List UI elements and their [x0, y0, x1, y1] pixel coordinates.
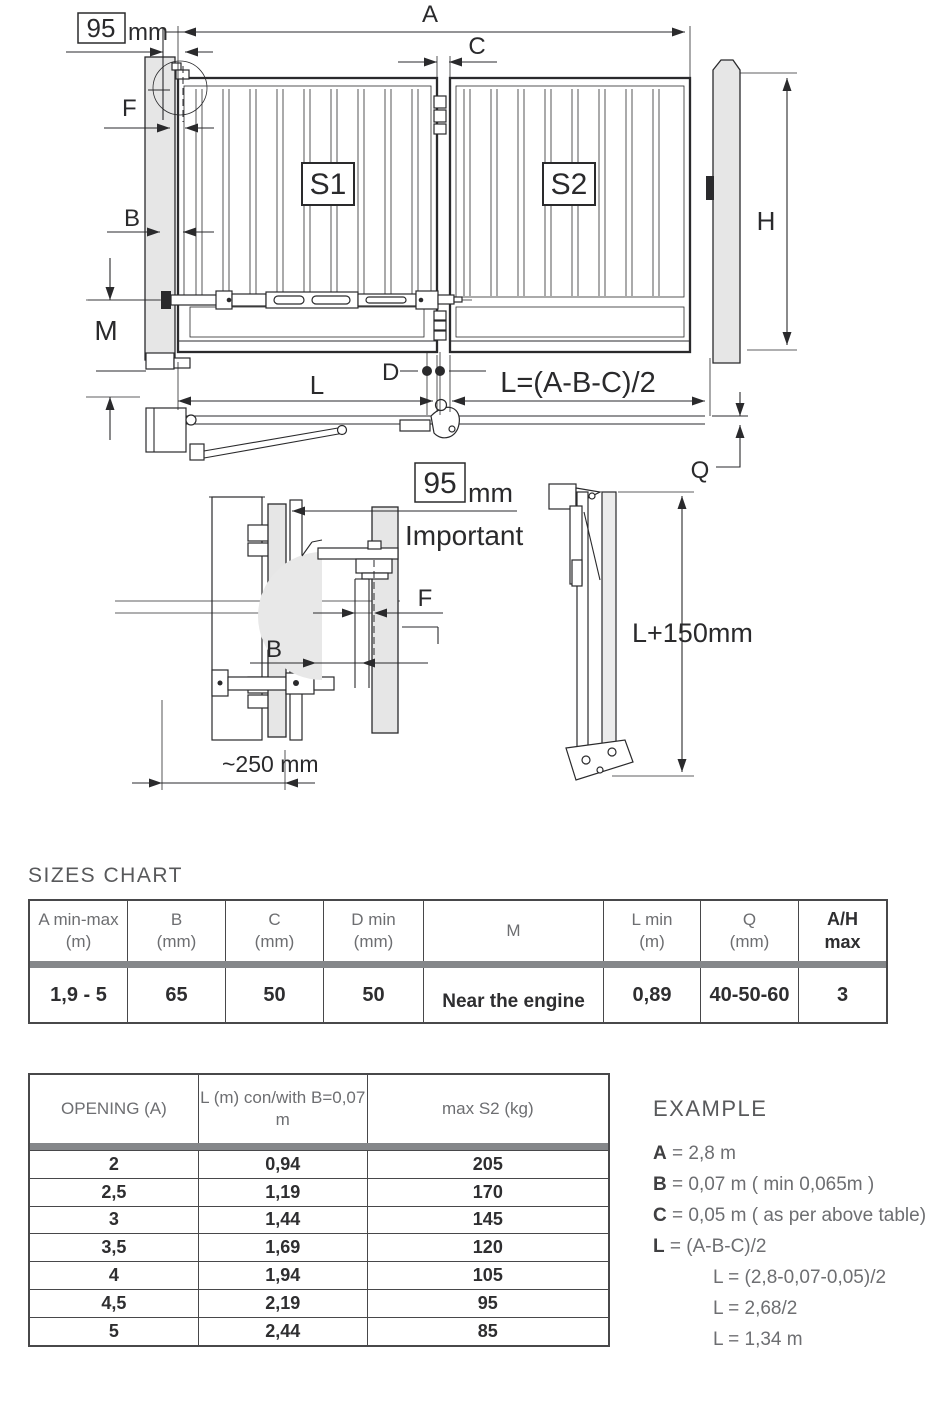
- leaf-width-formula: L=(A-B-C)/2: [500, 367, 656, 399]
- example-section: EXAMPLE A = 2,8 m B = 0,07 m ( min 0,065…: [653, 1096, 946, 1355]
- sizes-chart-title: SIZES CHART: [28, 864, 183, 888]
- col-header-q: Q(mm): [700, 901, 798, 961]
- col-header-leaf-l: L (m) con/with B=0,07 m: [198, 1075, 367, 1143]
- example-line: A = 2,8 m: [653, 1138, 946, 1169]
- table-row: 4,5 2,19 95: [30, 1289, 608, 1317]
- value-b: 65: [127, 968, 225, 1022]
- offset-unit-detail: mm: [468, 478, 513, 508]
- table-row: 4 1,94 105: [30, 1261, 608, 1289]
- sizes-chart-header-row: A min-max(m) B(mm) C(mm) D min(mm) M L m…: [30, 901, 886, 961]
- dim-m-label: M: [94, 315, 117, 346]
- example-line: L = 1,34 m: [653, 1324, 946, 1355]
- gate-front-view: S1 S2: [145, 28, 740, 363]
- plan-view: [146, 400, 748, 461]
- example-line: L = (2,8-0,07-0,05)/2: [653, 1262, 946, 1293]
- value-a: 1,9 - 5: [30, 968, 127, 1022]
- opening-table: OPENING (A) L (m) con/with B=0,07 m max …: [28, 1073, 610, 1347]
- lateral-distance-label: ~250 mm: [222, 751, 319, 777]
- dim-l-label: L: [310, 370, 324, 400]
- table-row: 2 0,94 205: [30, 1150, 608, 1178]
- dim-b-label: B: [124, 205, 140, 232]
- example-line: L = (A-B-C)/2: [653, 1231, 946, 1262]
- col-header-c: C(mm): [225, 901, 323, 961]
- value-q: 40-50-60: [700, 968, 798, 1022]
- offset-unit-top: mm: [128, 19, 168, 46]
- col-header-d: D min(mm): [323, 901, 423, 961]
- table-row: 2,5 1,19 170: [30, 1178, 608, 1206]
- dim-h-label: H: [757, 206, 776, 236]
- col-header-m: M: [423, 901, 603, 961]
- table-row: 3,5 1,69 120: [30, 1233, 608, 1261]
- col-header-ah: A/Hmax: [798, 901, 886, 961]
- example-line: L = 2,68/2: [653, 1293, 946, 1324]
- example-line: C = 0,05 m ( as per above table): [653, 1200, 946, 1231]
- offset-value-detail: 95: [423, 467, 456, 500]
- value-d: 50: [323, 968, 423, 1022]
- dim-a-label: A: [422, 1, 438, 28]
- latch-plate: [706, 176, 714, 200]
- dim-f-detail-label: F: [418, 585, 433, 612]
- value-c: 50: [225, 968, 323, 1022]
- manual-page: S1 S2: [0, 0, 946, 1401]
- example-line: B = 0,07 m ( min 0,065m ): [653, 1169, 946, 1200]
- leaf-s2-label: S2: [551, 168, 588, 201]
- col-header-l: L min(m): [603, 901, 700, 961]
- table-row: 3 1,44 145: [30, 1206, 608, 1234]
- sizes-chart-table: A min-max(m) B(mm) C(mm) D min(mm) M L m…: [28, 899, 888, 1024]
- example-title: EXAMPLE: [653, 1096, 946, 1122]
- offset-value-top: 95: [87, 13, 116, 43]
- table-row: 5 2,44 85: [30, 1317, 608, 1345]
- important-note: Important: [405, 520, 523, 551]
- dim-d-label: D: [382, 359, 399, 386]
- col-header-b: B(mm): [127, 901, 225, 961]
- value-m: Near the engine: [423, 968, 603, 1022]
- sizes-chart-value-row: 1,9 - 5 65 50 50 Near the engine 0,89 40…: [30, 968, 886, 1022]
- hinge-side-view: ~250 mm: [115, 497, 400, 790]
- left-post: [145, 57, 175, 360]
- dim-b-detail-label: B: [266, 636, 282, 663]
- dim-q-label: Q: [691, 457, 710, 484]
- installation-diagram: S1 S2: [0, 0, 946, 845]
- value-l: 0,89: [603, 968, 700, 1022]
- opening-table-header-row: OPENING (A) L (m) con/with B=0,07 m max …: [30, 1075, 608, 1143]
- dim-c-label: C: [468, 33, 485, 60]
- arm-length-label: L+150mm: [632, 618, 753, 648]
- right-post: [713, 60, 740, 363]
- col-header-a: A min-max(m): [30, 901, 127, 961]
- actuator-side-view: L+150mm: [549, 484, 753, 780]
- leaf-s1-label: S1: [310, 168, 347, 201]
- header-divider: [30, 961, 886, 968]
- col-header-opening: OPENING (A): [30, 1075, 198, 1143]
- value-ah: 3: [798, 968, 886, 1022]
- header-divider: [30, 1143, 608, 1150]
- dim-f-label: F: [122, 95, 137, 122]
- col-header-max-s2: max S2 (kg): [367, 1075, 608, 1143]
